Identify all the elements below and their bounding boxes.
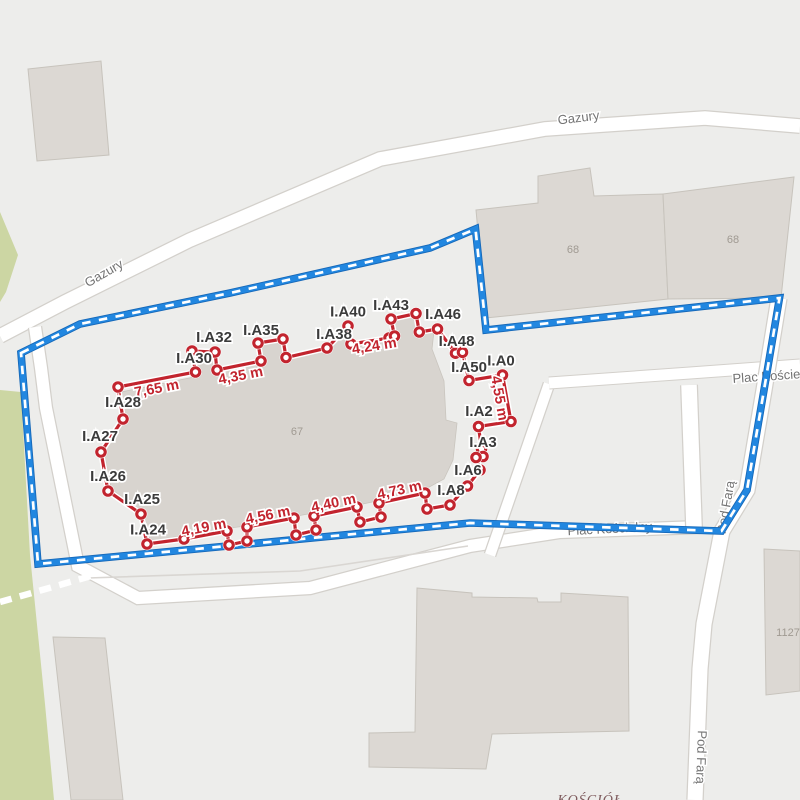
svg-text:I.A32: I.A32 xyxy=(196,329,232,346)
svg-text:I.A25: I.A25 xyxy=(124,491,160,508)
svg-text:I.A50: I.A50 xyxy=(451,359,487,376)
svg-text:I.A27: I.A27 xyxy=(82,428,118,445)
svg-text:Pod Farą: Pod Farą xyxy=(693,730,710,785)
svg-text:I.A38: I.A38 xyxy=(316,326,352,343)
svg-text:I.A30: I.A30 xyxy=(176,350,212,367)
svg-text:I.A6: I.A6 xyxy=(454,462,482,479)
svg-text:68: 68 xyxy=(727,234,739,246)
svg-text:I.A3: I.A3 xyxy=(469,434,497,451)
svg-text:I.A28: I.A28 xyxy=(105,394,141,411)
svg-text:I.A40: I.A40 xyxy=(330,304,366,321)
svg-text:I.A48: I.A48 xyxy=(439,333,475,350)
svg-text:68: 68 xyxy=(567,244,579,256)
svg-text:67: 67 xyxy=(291,426,303,438)
svg-text:I.A43: I.A43 xyxy=(373,297,409,314)
svg-text:I.A26: I.A26 xyxy=(90,468,126,485)
svg-text:I.A46: I.A46 xyxy=(425,306,461,323)
svg-text:I.A2: I.A2 xyxy=(465,403,493,420)
svg-text:I.A0: I.A0 xyxy=(487,353,515,370)
svg-text:1127: 1127 xyxy=(776,627,800,639)
svg-text:I.A35: I.A35 xyxy=(243,322,279,339)
svg-text:I.A8: I.A8 xyxy=(437,482,465,499)
svg-text:kościół: kościół xyxy=(556,788,622,800)
svg-text:I.A24: I.A24 xyxy=(130,522,167,539)
